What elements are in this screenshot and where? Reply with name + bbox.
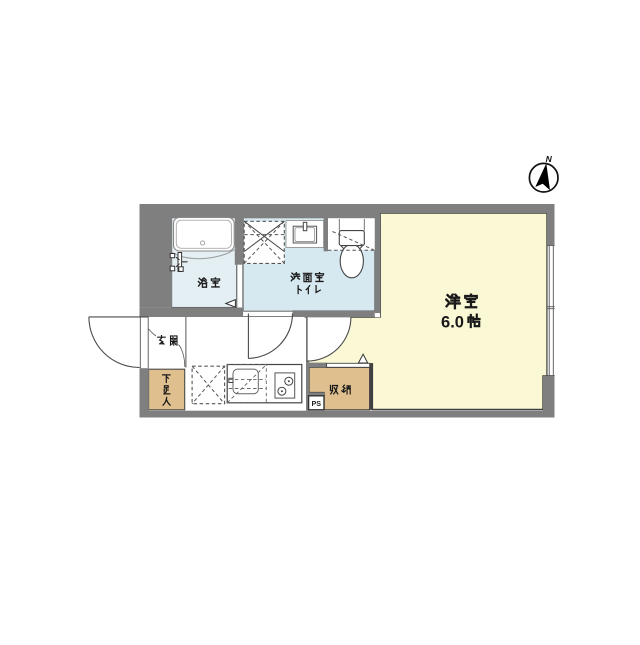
svg-text:6.0: 6.0 xyxy=(441,313,464,331)
svg-text:N: N xyxy=(546,154,553,164)
svg-text:PS: PS xyxy=(312,399,322,408)
